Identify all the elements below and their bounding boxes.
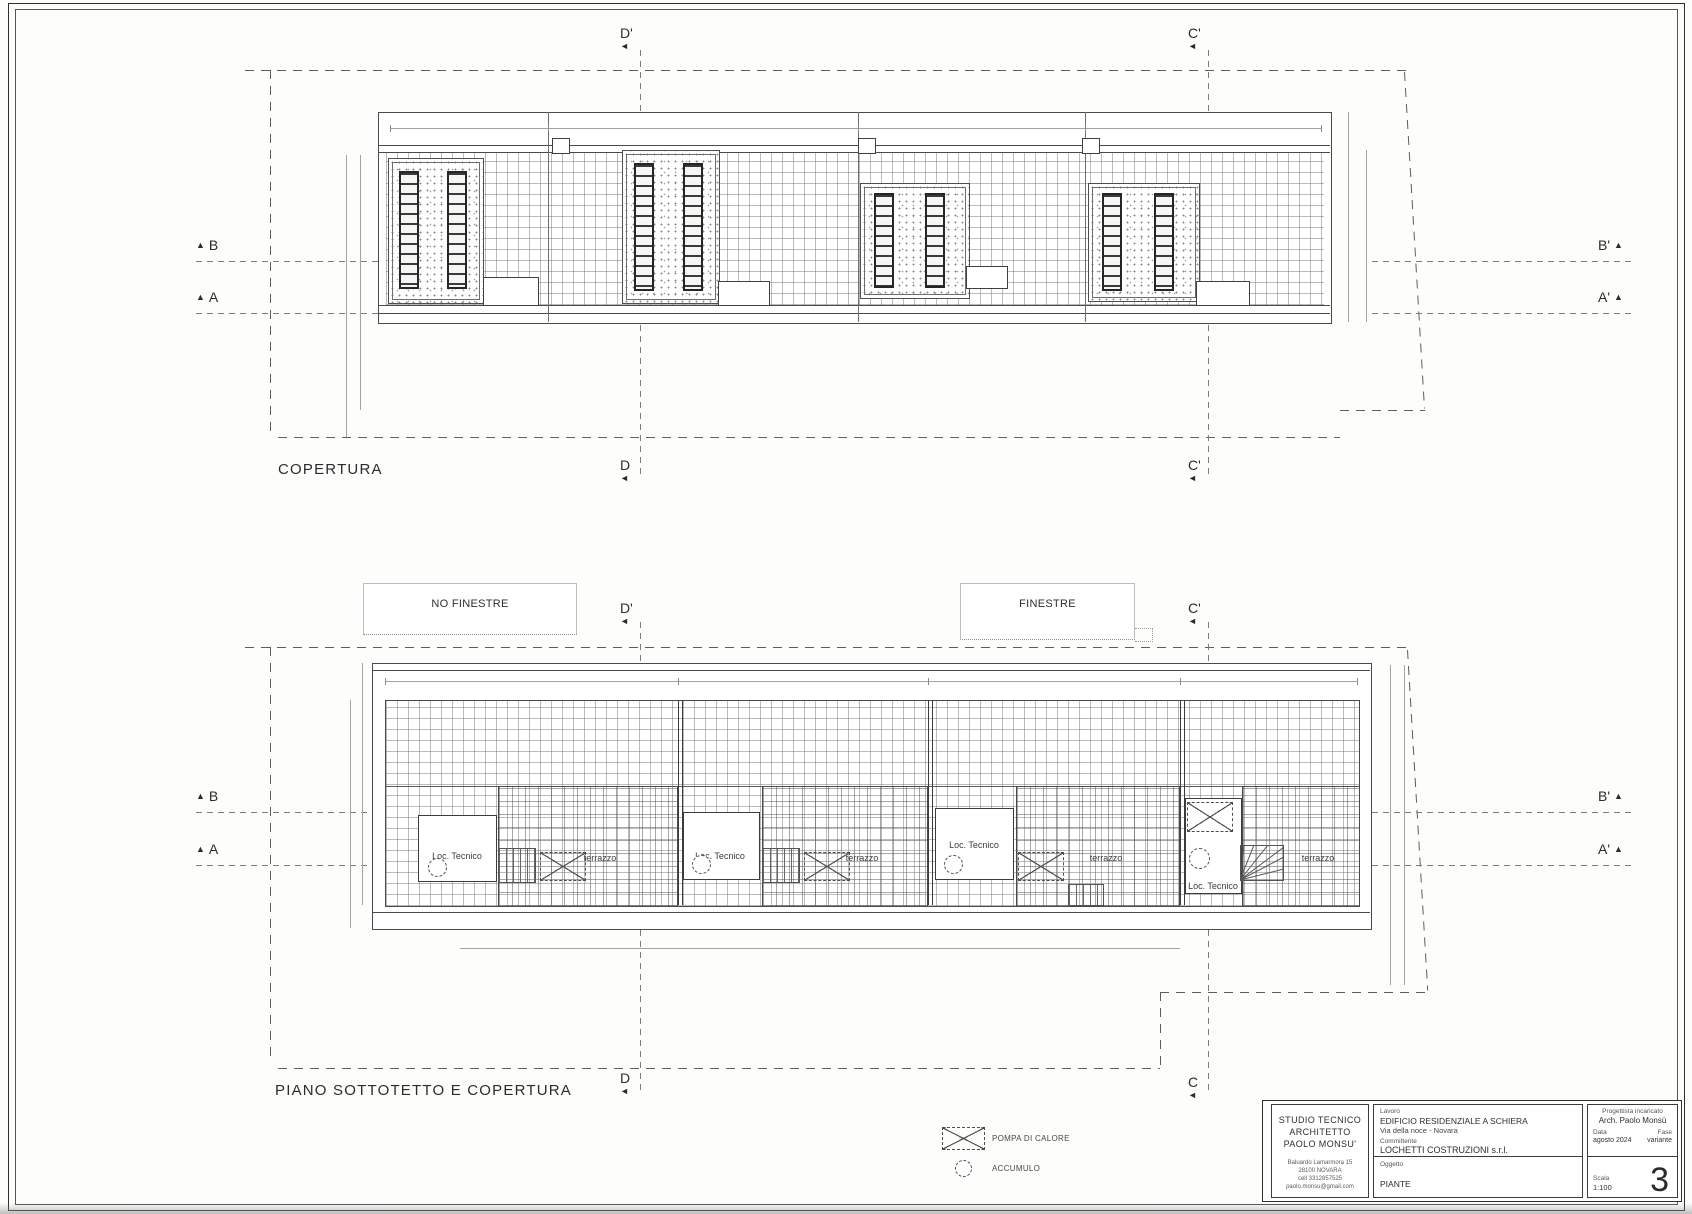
section-marker-a-left: ▲ A xyxy=(196,291,218,304)
roof-dormer xyxy=(718,281,770,306)
legend-accumulator-label: ACCUMULO xyxy=(992,1164,1040,1173)
plan-title-copertura: COPERTURA xyxy=(278,461,383,478)
studio-address3: cell 3312857525 xyxy=(1272,1175,1368,1183)
boundary-line xyxy=(270,647,271,1063)
section-marker-c-bottom: C ◄ xyxy=(1188,1076,1198,1100)
arrow-up-icon: ▲ xyxy=(196,792,205,801)
note-label: FINESTRE xyxy=(1019,598,1076,610)
dimension-line xyxy=(360,155,361,410)
skylight xyxy=(447,171,467,289)
dim-tick xyxy=(928,678,929,685)
winder-stair-unit4 xyxy=(1240,845,1284,881)
title-block-project-cell: Lavoro EDIFICIO RESIDENZIALE A SCHIERA V… xyxy=(1373,1104,1583,1198)
section-line-b-right xyxy=(1372,261,1634,262)
section-marker-a-left: ▲ A xyxy=(196,843,218,856)
dim-tick xyxy=(678,678,679,685)
accumulator-symbol xyxy=(428,858,447,877)
section-label: C xyxy=(1188,1076,1198,1089)
dim-tick xyxy=(1085,125,1086,132)
skylight xyxy=(399,171,419,289)
boundary-line xyxy=(1340,410,1425,411)
committente-value: LOCHETTI COSTRUZIONI s.r.l. xyxy=(1380,1145,1508,1155)
section-label: B' xyxy=(1598,239,1610,252)
skylight xyxy=(1154,193,1174,291)
section-label: D' xyxy=(620,27,633,40)
boundary-line xyxy=(278,1068,1160,1069)
heat-pump-symbol xyxy=(1018,852,1064,881)
roof-eave-line xyxy=(378,313,1330,314)
stair-unit3 xyxy=(1068,884,1104,906)
section-label: D' xyxy=(620,602,633,615)
boundary-line xyxy=(245,647,1406,648)
scan-artifact xyxy=(0,1203,1692,1214)
note-label: NO FINESTRE xyxy=(431,598,508,610)
gravel-patch xyxy=(860,183,970,299)
progettista-value: Arch. Paolo Monsù xyxy=(1588,1116,1677,1125)
section-label: B xyxy=(209,790,218,803)
section-marker-a-right: A' ▲ xyxy=(1598,291,1623,304)
section-label: A' xyxy=(1598,843,1610,856)
arrow-up-icon: ▲ xyxy=(196,845,205,854)
plan-title-sottotetto: PIANO SOTTOTETTO E COPERTURA xyxy=(275,1082,572,1099)
section-label: B' xyxy=(1598,790,1610,803)
dimension-line xyxy=(460,948,1180,949)
fase-value: variante xyxy=(1647,1137,1672,1144)
section-marker-a-right: A' ▲ xyxy=(1598,843,1623,856)
roof-unit-break xyxy=(548,112,549,322)
oggetto-label: Oggetto xyxy=(1380,1161,1403,1168)
heat-pump-symbol xyxy=(804,852,850,881)
roof-chimney xyxy=(858,138,876,154)
terrace-label: terrazzo xyxy=(846,853,879,863)
lavoro-value: EDIFICIO RESIDENZIALE A SCHIERA xyxy=(1380,1116,1528,1126)
skylight xyxy=(1102,193,1122,291)
section-marker-b-right: B' ▲ xyxy=(1598,239,1623,252)
section-marker-b-left: ▲ B xyxy=(196,790,218,803)
arrow-left-icon: ◄ xyxy=(620,474,629,483)
section-marker-c-bottom: C' ◄ xyxy=(1188,459,1201,483)
section-label: A' xyxy=(1598,291,1610,304)
dimension-line xyxy=(385,681,1358,682)
section-marker-b-left: ▲ B xyxy=(196,239,218,252)
dimension-line xyxy=(346,155,347,437)
arrow-left-icon: ◄ xyxy=(1188,474,1197,483)
arrow-left-icon: ◄ xyxy=(620,1087,629,1096)
section-label: B xyxy=(209,239,218,252)
legend-accumulator-icon xyxy=(955,1160,972,1177)
attic-eave-line xyxy=(372,670,1370,671)
dim-tick xyxy=(1321,125,1322,132)
boundary-line xyxy=(245,70,1406,71)
dim-tick xyxy=(548,125,549,132)
attic-eave-line xyxy=(372,912,1370,913)
section-marker-b-right: B' ▲ xyxy=(1598,790,1623,803)
studio-line3: PAOLO MONSU' xyxy=(1272,1138,1368,1150)
legend-heat-pump-label: POMPA DI CALORE xyxy=(992,1134,1070,1143)
room-label: Loc. Tecnico xyxy=(1188,881,1238,891)
stair-unit2 xyxy=(762,848,800,883)
section-label: C' xyxy=(1188,27,1201,40)
section-marker-c-prime-top: C' ◄ xyxy=(1188,602,1201,626)
room-label: Loc. Tecnico xyxy=(949,840,999,850)
dim-tick xyxy=(858,125,859,132)
studio-line2: ARCHITETTO xyxy=(1272,1126,1368,1138)
note-finestre: FINESTRE xyxy=(960,583,1135,640)
dim-tick xyxy=(385,678,386,685)
section-marker-d-prime-top: D' ◄ xyxy=(620,27,633,51)
cell-divider xyxy=(1588,1156,1677,1157)
terrace-label: terrazzo xyxy=(1302,853,1335,863)
dimension-line xyxy=(350,700,351,928)
section-marker-d-prime-top: D' ◄ xyxy=(620,602,633,626)
skylight xyxy=(634,163,654,291)
oggetto-value: PIANTE xyxy=(1380,1179,1411,1189)
heat-pump-symbol xyxy=(1187,802,1233,832)
roof-dormer xyxy=(966,266,1008,289)
arrow-up-icon: ▲ xyxy=(1614,293,1623,302)
roof-eave-line xyxy=(378,145,1330,146)
arrow-up-icon: ▲ xyxy=(196,293,205,302)
section-label: C' xyxy=(1188,602,1201,615)
gravel-patch xyxy=(622,150,720,304)
dimension-line xyxy=(390,128,1322,129)
skylight xyxy=(683,163,703,291)
arrow-up-icon: ▲ xyxy=(1614,845,1623,854)
arrow-left-icon: ◄ xyxy=(620,42,629,51)
accumulator-symbol xyxy=(692,855,711,874)
studio-address4: paolo.monsu@gmail.com xyxy=(1272,1183,1368,1191)
terrace-label: terrazzo xyxy=(1090,853,1123,863)
fase-label: Fase xyxy=(1658,1129,1672,1136)
section-label: D xyxy=(620,1072,630,1085)
party-wall xyxy=(928,700,933,905)
dim-tick xyxy=(390,125,391,132)
arrow-left-icon: ◄ xyxy=(1188,617,1197,626)
section-marker-c-prime-top: C' ◄ xyxy=(1188,27,1201,51)
roof-chimney xyxy=(1082,138,1100,154)
data-value: agosto 2024 xyxy=(1593,1137,1632,1144)
committente-label: Committente xyxy=(1380,1138,1417,1145)
lavoro-label: Lavoro xyxy=(1380,1108,1400,1115)
dimension-line xyxy=(362,663,363,905)
arrow-left-icon: ◄ xyxy=(1188,1091,1197,1100)
section-label: D xyxy=(620,459,630,472)
dimension-line xyxy=(1348,112,1349,322)
boundary-line xyxy=(270,70,271,433)
data-label: Data xyxy=(1593,1129,1607,1136)
arrow-left-icon: ◄ xyxy=(620,617,629,626)
section-label: A xyxy=(209,843,218,856)
roof-dormer xyxy=(1196,281,1250,306)
accumulator-symbol xyxy=(944,855,963,874)
skylight xyxy=(874,193,894,288)
accumulator-symbol xyxy=(1189,848,1210,869)
title-block: STUDIO TECNICO ARCHITETTO PAOLO MONSU' B… xyxy=(1262,1100,1682,1202)
boundary-line xyxy=(1160,992,1426,993)
heat-pump-symbol xyxy=(540,852,586,881)
studio-address1: Baluardo Lamarmora 15 xyxy=(1272,1159,1368,1167)
section-line-a-right xyxy=(1372,865,1634,866)
section-label: C' xyxy=(1188,459,1201,472)
section-marker-d-bottom: D ◄ xyxy=(620,459,630,483)
section-marker-d-bottom: D ◄ xyxy=(620,1072,630,1096)
boundary-line xyxy=(278,437,1340,438)
gravel-patch xyxy=(1088,183,1200,302)
sheet-number: 3 xyxy=(1650,1161,1669,1200)
dim-tick xyxy=(1180,678,1181,685)
skylight xyxy=(925,193,945,288)
lavoro-address: Via della noce - Novara xyxy=(1380,1126,1458,1135)
cell-divider xyxy=(1374,1156,1582,1157)
dimension-line xyxy=(1390,665,1391,985)
note-finestre-step xyxy=(1135,628,1153,642)
studio-address2: 28100 NOVARA xyxy=(1272,1167,1368,1175)
studio-line1: STUDIO TECNICO xyxy=(1272,1114,1368,1126)
title-block-studio-cell: STUDIO TECNICO ARCHITETTO PAOLO MONSU' B… xyxy=(1271,1104,1369,1198)
arrow-up-icon: ▲ xyxy=(196,241,205,250)
section-line-b-right xyxy=(1372,812,1634,813)
legend-heat-pump-icon xyxy=(942,1127,985,1150)
roof-dormer xyxy=(483,277,539,306)
progettista-label: Progettista incaricato xyxy=(1588,1108,1677,1115)
dim-tick xyxy=(1357,678,1358,685)
section-line-a-right xyxy=(1372,313,1634,314)
terrace-unit2 xyxy=(762,786,928,907)
arrow-left-icon: ◄ xyxy=(1188,42,1197,51)
dimension-line xyxy=(1404,665,1405,985)
arrow-up-icon: ▲ xyxy=(1614,241,1623,250)
terrace-label: terrazzo xyxy=(584,853,617,863)
arrow-up-icon: ▲ xyxy=(1614,792,1623,801)
note-no-finestre: NO FINESTRE xyxy=(363,583,577,635)
dimension-line xyxy=(1366,150,1367,322)
scala-value: 1:100 xyxy=(1593,1183,1612,1192)
scala-label: Scala xyxy=(1593,1175,1609,1182)
boundary-line xyxy=(1160,992,1161,1068)
drawing-sheet: D' ◄ C' ◄ D ◄ C' ◄ ▲ B ▲ A B' ▲ A' ▲ xyxy=(0,0,1692,1214)
stair-unit1 xyxy=(498,848,536,883)
title-block-meta-cell: Progettista incaricato Arch. Paolo Monsù… xyxy=(1587,1104,1678,1198)
section-label: A xyxy=(209,291,218,304)
roof-chimney xyxy=(552,138,570,154)
gravel-patch xyxy=(388,158,484,304)
terrace-unit1 xyxy=(498,786,678,907)
